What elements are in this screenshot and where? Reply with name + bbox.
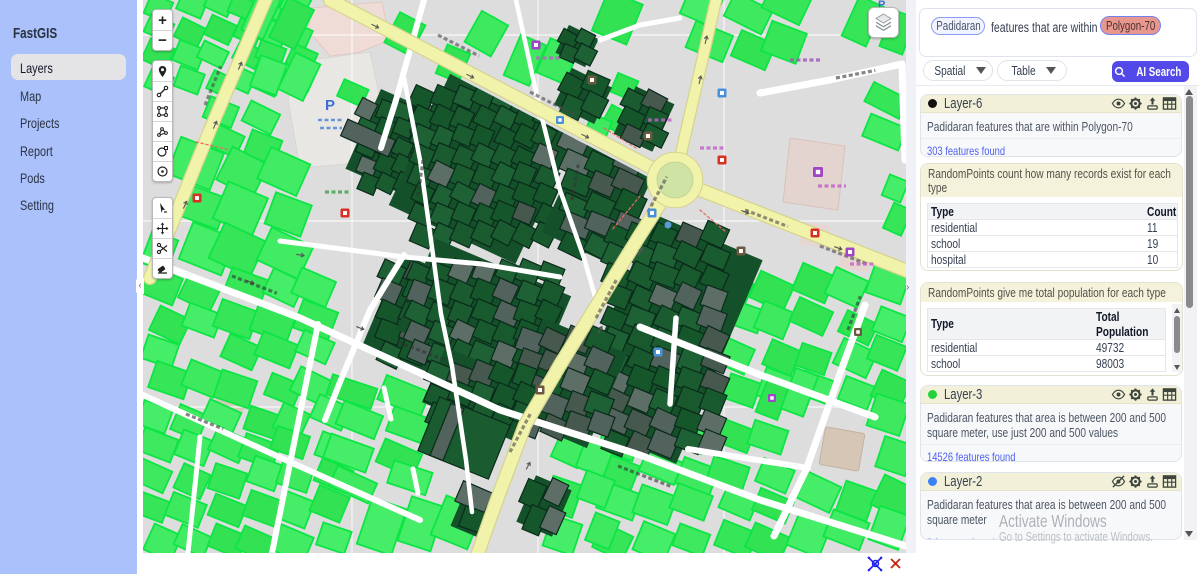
svg-text:P: P — [325, 97, 335, 114]
